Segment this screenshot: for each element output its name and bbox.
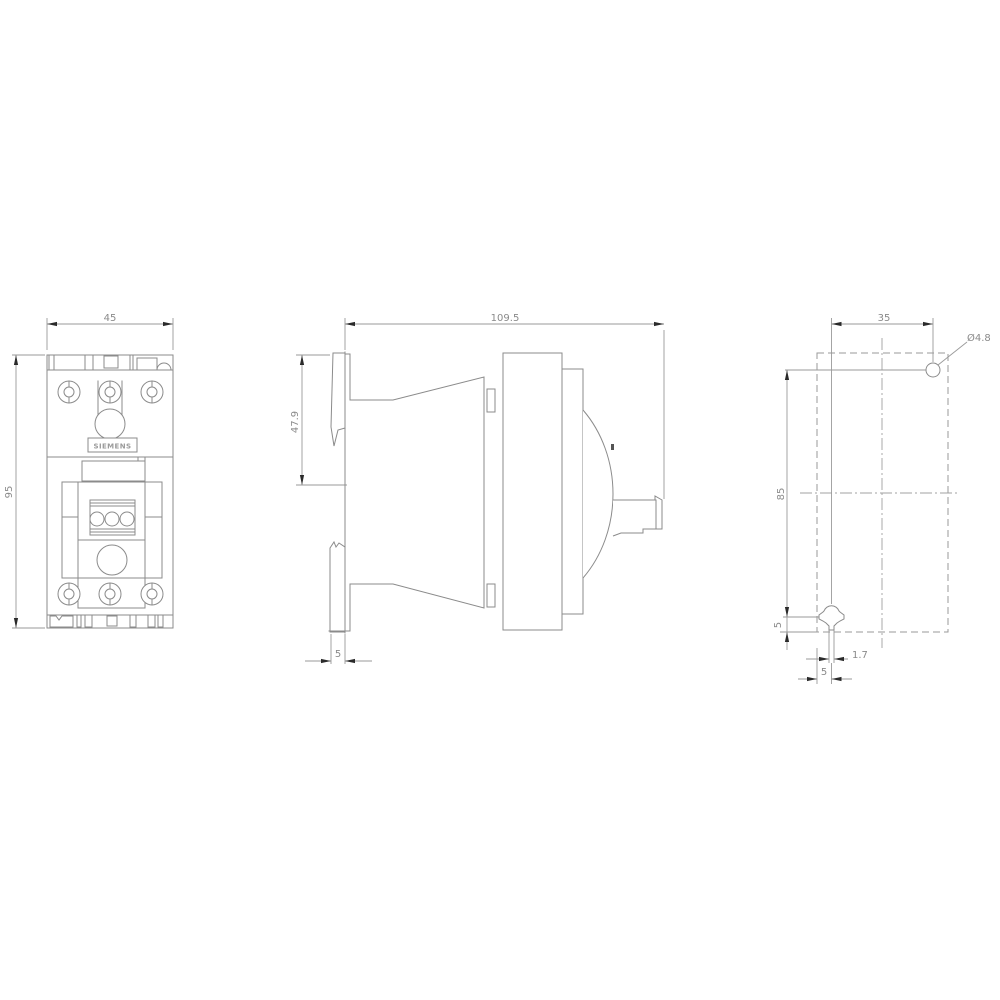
screw-terminal <box>141 381 163 403</box>
keyhole-slot <box>819 606 844 630</box>
side-bulge <box>583 410 613 578</box>
dim-label-depth: 109.5 <box>491 313 520 324</box>
dimension-drawing: 45 95 <box>0 0 1000 1000</box>
dim-height-95: 95 <box>4 355 45 628</box>
dim-hole-spacing-85: 85 <box>776 370 789 617</box>
side-view: 109.5 47.9 5 <box>290 313 664 664</box>
dim-label-edge-offset-bottom: 5 <box>773 622 784 628</box>
screw-terminal <box>58 381 80 403</box>
dim-label-rail-recess: 5 <box>335 649 341 660</box>
dim-upper-height-47-9: 47.9 <box>290 355 347 485</box>
front-window <box>82 461 145 481</box>
drilling-plan: 35 Ø4.8 85 5 1.7 <box>773 313 991 684</box>
dim-label-edge-offset-side: 5 <box>821 667 827 678</box>
dim-edge-offset-bottom-5: 5 <box>773 617 789 650</box>
dim-label-upper-height: 47.9 <box>290 411 301 433</box>
din-clip-top <box>331 353 345 446</box>
mounting-hole <box>926 363 940 377</box>
screw-terminal <box>99 583 121 605</box>
siemens-label: SIEMENS <box>88 438 137 452</box>
dim-label-width: 45 <box>104 313 117 324</box>
dim-rail-recess-5: 5 <box>305 634 372 664</box>
side-terminal-knob <box>613 496 662 536</box>
screw-terminals-bottom <box>58 583 163 605</box>
siemens-label-text: SIEMENS <box>94 443 132 451</box>
screw-terminals-top <box>58 381 163 403</box>
din-clip-bottom <box>330 542 345 632</box>
auxiliary-terminal-block <box>90 500 135 535</box>
dim-width-45: 45 <box>47 313 173 350</box>
callout-hole-diameter: Ø4.8 <box>938 332 991 365</box>
dim-slot-width-1-7: 1.7 <box>806 650 868 661</box>
dim-label-hole-diameter: Ø4.8 <box>967 332 991 344</box>
screw-terminal <box>99 381 121 403</box>
dim-label-height: 95 <box>4 486 15 499</box>
dim-label-slot-width: 1.7 <box>852 650 868 661</box>
side-block-rear <box>562 369 583 614</box>
dim-label-hole-spacing-h: 35 <box>878 313 891 324</box>
dim-edge-offset-side-5: 5 <box>798 667 852 681</box>
side-block-main <box>503 353 562 630</box>
front-actuator-circle <box>95 409 125 439</box>
screw-terminal <box>58 583 80 605</box>
device-outline-dashed <box>817 353 948 632</box>
dim-label-hole-spacing-v: 85 <box>776 488 787 501</box>
screw-terminal <box>141 583 163 605</box>
reset-button <box>97 545 127 575</box>
side-profile <box>329 354 484 631</box>
front-view: 45 95 <box>4 313 173 628</box>
